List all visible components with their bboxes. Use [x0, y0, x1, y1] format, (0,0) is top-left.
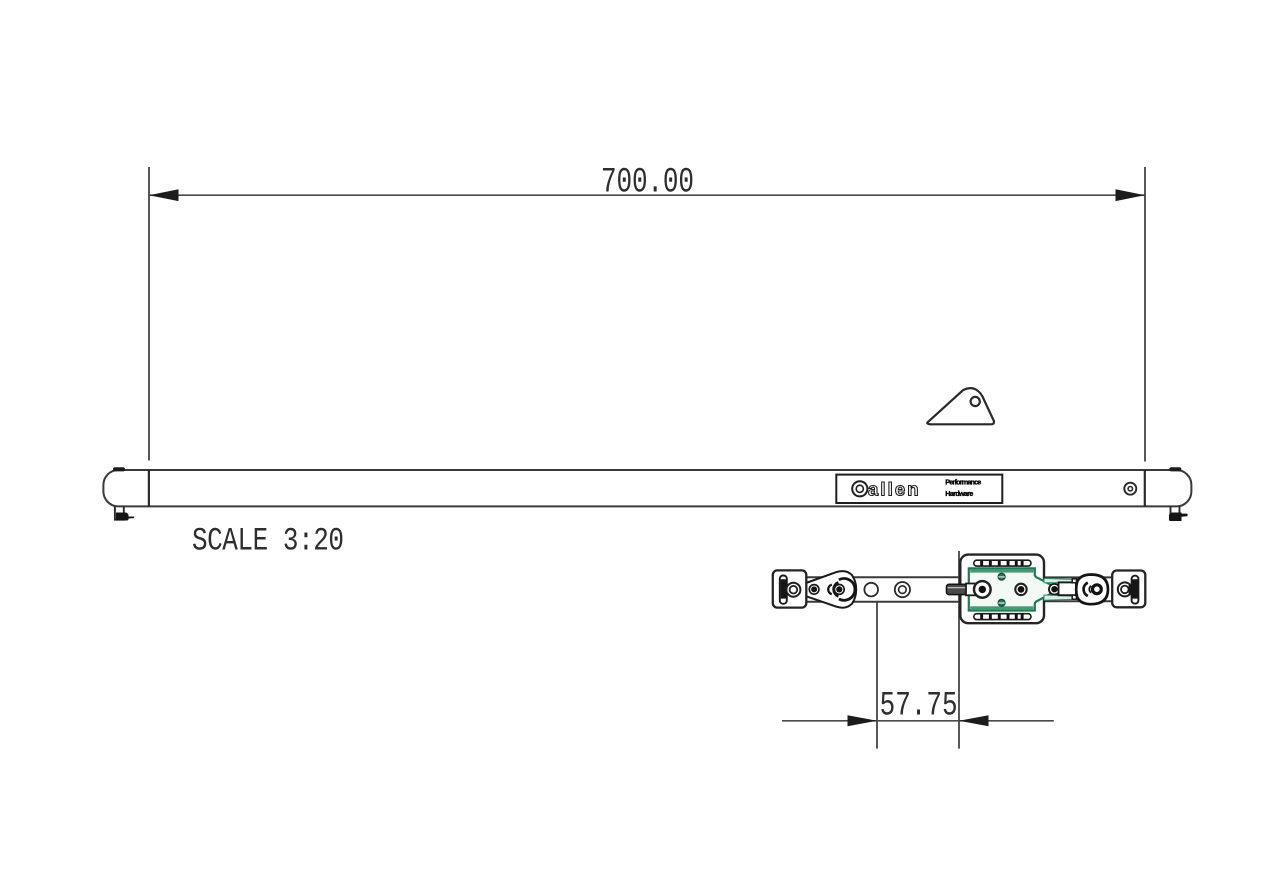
svg-text:700.00: 700.00 — [601, 163, 694, 203]
svg-text:SCALE 3:20: SCALE 3:20 — [192, 523, 344, 559]
svg-text:57.75: 57.75 — [880, 687, 958, 725]
svg-text:Hardware: Hardware — [945, 489, 973, 498]
svg-text:Performance: Performance — [945, 478, 981, 487]
